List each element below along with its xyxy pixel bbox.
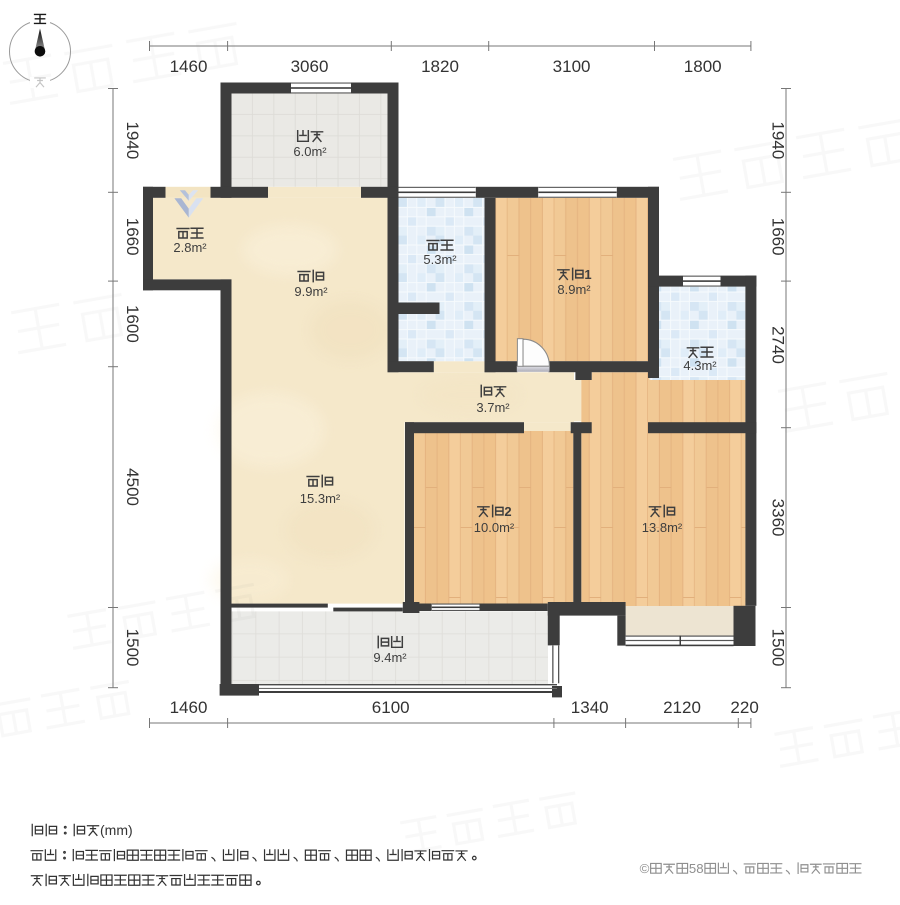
svg-text:2: 2 (504, 504, 511, 519)
svg-text:4.3m²: 4.3m² (683, 358, 717, 373)
svg-text:1460: 1460 (170, 57, 208, 76)
svg-text:8.9m²: 8.9m² (557, 282, 591, 297)
svg-text:9.4m²: 9.4m² (373, 650, 407, 665)
svg-text:1820: 1820 (421, 57, 459, 76)
svg-text:15.3m²: 15.3m² (300, 491, 341, 506)
svg-text:10.0m²: 10.0m² (474, 520, 515, 535)
svg-text:2120: 2120 (663, 698, 701, 717)
svg-text:13.8m²: 13.8m² (642, 520, 683, 535)
svg-text:1940: 1940 (123, 121, 142, 159)
svg-text:1800: 1800 (684, 57, 722, 76)
svg-text:3060: 3060 (291, 57, 329, 76)
svg-text:(mm): (mm) (100, 822, 133, 838)
svg-text:220: 220 (730, 698, 758, 717)
svg-text:1660: 1660 (769, 218, 788, 256)
svg-text:1460: 1460 (170, 698, 208, 717)
svg-text:6100: 6100 (372, 698, 410, 717)
svg-text:3100: 3100 (553, 57, 591, 76)
svg-text:9.9m²: 9.9m² (294, 284, 328, 299)
svg-text:4500: 4500 (123, 468, 142, 506)
svg-text:58: 58 (689, 861, 704, 876)
svg-text:6.0m²: 6.0m² (293, 144, 327, 159)
svg-text:1500: 1500 (769, 629, 788, 667)
svg-text:©: © (640, 861, 650, 876)
svg-text:3.7m²: 3.7m² (476, 400, 510, 415)
svg-text:1660: 1660 (123, 218, 142, 256)
svg-text:2.8m²: 2.8m² (173, 240, 207, 255)
svg-text:1500: 1500 (123, 629, 142, 667)
svg-text:2740: 2740 (769, 326, 788, 364)
svg-text:1600: 1600 (123, 305, 142, 343)
svg-text:1340: 1340 (571, 698, 609, 717)
svg-text:3360: 3360 (769, 499, 788, 537)
svg-text:1: 1 (584, 267, 591, 282)
svg-text:5.3m²: 5.3m² (423, 252, 457, 267)
svg-text:1940: 1940 (769, 121, 788, 159)
